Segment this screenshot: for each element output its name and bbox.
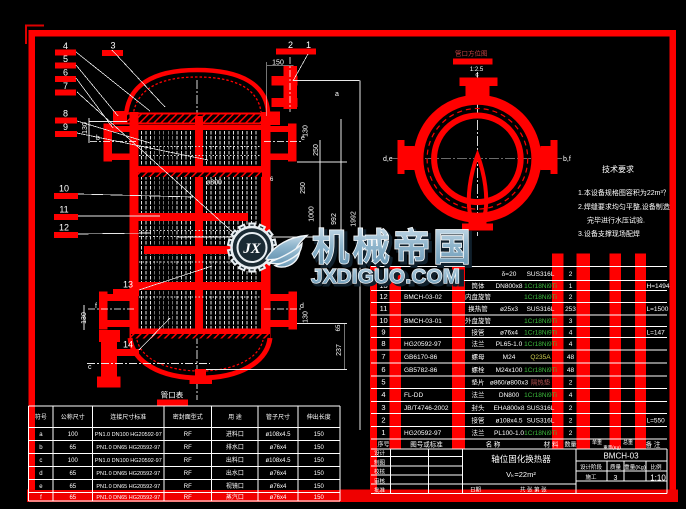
svg-text:筒体: 筒体 xyxy=(472,281,486,290)
svg-text:PN1.0 DN65 HG20592-97: PN1.0 DN65 HG20592-97 xyxy=(96,445,160,451)
svg-text:8: 8 xyxy=(63,109,68,119)
svg-text:1Cr18Ni9Ti: 1Cr18Ni9Ti xyxy=(524,392,557,399)
svg-text:换热管: 换热管 xyxy=(468,304,488,313)
svg-text:RF: RF xyxy=(184,495,192,501)
svg-text:数量: 数量 xyxy=(564,441,576,449)
svg-text:253: 253 xyxy=(565,306,576,313)
svg-text:4: 4 xyxy=(569,392,573,399)
svg-text:EHA800x8: EHA800x8 xyxy=(493,405,524,412)
svg-text:Q235A: Q235A xyxy=(530,354,551,361)
svg-text:65: 65 xyxy=(69,445,76,451)
svg-text:ø76x4: ø76x4 xyxy=(270,471,287,477)
svg-text:2: 2 xyxy=(569,430,573,437)
svg-text:技术要求: 技术要求 xyxy=(602,164,634,174)
svg-text:PN1.0 DN65 HG20592-97: PN1.0 DN65 HG20592-97 xyxy=(96,471,160,477)
svg-text:HG20592-97: HG20592-97 xyxy=(404,341,442,348)
svg-text:ø860/ø800x3: ø860/ø800x3 xyxy=(490,379,529,386)
svg-text:垫片: 垫片 xyxy=(472,377,485,386)
svg-text:2: 2 xyxy=(569,405,573,412)
svg-text:M24x100: M24x100 xyxy=(496,367,523,374)
svg-text:4: 4 xyxy=(381,390,385,399)
svg-text:FL-DD: FL-DD xyxy=(404,392,423,399)
svg-text:150: 150 xyxy=(272,60,284,67)
svg-text:ø76x4: ø76x4 xyxy=(270,445,287,451)
svg-text:150: 150 xyxy=(314,495,325,501)
svg-text:1Cr18Ni9Ti: 1Cr18Ni9Ti xyxy=(524,367,557,374)
svg-text:1.本设备规格图容积为22m³？: 1.本设备规格图容积为22m³？ xyxy=(578,188,670,197)
svg-text:150: 150 xyxy=(314,484,325,490)
svg-text:48: 48 xyxy=(567,367,575,374)
svg-text:备 注: 备 注 xyxy=(646,440,661,449)
svg-text:接管: 接管 xyxy=(472,415,486,424)
svg-text:制图: 制图 xyxy=(374,458,386,466)
svg-text:ø800: ø800 xyxy=(206,180,222,187)
svg-text:质量: 质量 xyxy=(610,463,622,471)
svg-text:Vₖ=22m²: Vₖ=22m² xyxy=(506,470,536,479)
svg-text:ø25x3: ø25x3 xyxy=(500,306,518,313)
svg-text:1Cr18Ni9Ti: 1Cr18Ni9Ti xyxy=(524,341,557,348)
svg-text:a: a xyxy=(335,91,339,98)
svg-text:出料口: 出料口 xyxy=(226,456,244,464)
svg-text:100: 100 xyxy=(68,432,79,438)
svg-text:符号: 符号 xyxy=(35,413,47,421)
svg-text:3: 3 xyxy=(381,403,385,412)
svg-text:HG20592-97: HG20592-97 xyxy=(404,430,442,437)
svg-text:接管: 接管 xyxy=(472,327,486,336)
svg-text:PN1.0 DN65 HG20592-97: PN1.0 DN65 HG20592-97 xyxy=(96,495,160,501)
svg-text:14: 14 xyxy=(123,340,133,350)
svg-text:65: 65 xyxy=(69,484,76,490)
svg-text:9: 9 xyxy=(63,122,68,132)
svg-text:RF: RF xyxy=(184,445,192,451)
svg-text:1Cr18Ni9Ti: 1Cr18Ni9Ti xyxy=(524,294,557,301)
svg-text:法兰: 法兰 xyxy=(472,428,486,437)
svg-text:法兰: 法兰 xyxy=(472,390,486,399)
svg-text:轴位固化换热器: 轴位固化换热器 xyxy=(491,454,551,464)
svg-text:设计阶段: 设计阶段 xyxy=(580,463,603,471)
svg-text:SUS316L: SUS316L xyxy=(527,405,555,412)
svg-text:RF: RF xyxy=(184,484,192,490)
svg-text:130: 130 xyxy=(303,125,310,137)
svg-text:11: 11 xyxy=(59,205,68,215)
svg-text:管子尺寸: 管子尺寸 xyxy=(266,413,290,421)
svg-text:排水口: 排水口 xyxy=(226,443,244,451)
svg-text:ø76x4: ø76x4 xyxy=(270,495,287,501)
svg-text:管口方位图: 管口方位图 xyxy=(455,49,488,58)
svg-text:机械帝国: 机械帝国 xyxy=(312,227,474,268)
svg-text:11: 11 xyxy=(380,304,388,313)
svg-text:密封面型式: 密封面型式 xyxy=(173,413,203,421)
svg-text:992: 992 xyxy=(331,213,338,225)
svg-text:150: 150 xyxy=(314,471,325,477)
svg-text:48: 48 xyxy=(567,354,575,361)
svg-text:d,e: d,e xyxy=(383,156,393,163)
svg-text:单重: 单重 xyxy=(592,439,602,446)
svg-text:L=147: L=147 xyxy=(647,329,666,336)
svg-text:RF: RF xyxy=(184,471,192,477)
svg-text:连接尺寸标准: 连接尺寸标准 xyxy=(110,413,146,421)
svg-text:7: 7 xyxy=(381,352,385,361)
svg-text:伸出长度: 伸出长度 xyxy=(307,413,331,421)
svg-text:公称尺寸: 公称尺寸 xyxy=(61,413,85,421)
svg-text:ø76x4: ø76x4 xyxy=(500,329,518,336)
svg-text:2: 2 xyxy=(569,379,573,386)
svg-text:130: 130 xyxy=(303,311,310,323)
svg-text:6: 6 xyxy=(381,365,385,374)
svg-text:12: 12 xyxy=(59,223,69,233)
svg-text:130: 130 xyxy=(82,122,89,134)
svg-text:ø108x4.5: ø108x4.5 xyxy=(495,417,522,424)
svg-text:序号: 序号 xyxy=(377,441,389,449)
svg-text:9: 9 xyxy=(381,327,385,336)
svg-text:d: d xyxy=(300,303,304,310)
svg-text:SUS316L: SUS316L xyxy=(527,306,555,313)
svg-text:设计: 设计 xyxy=(374,449,386,457)
svg-text:3.设备支撑现场配焊: 3.设备支撑现场配焊 xyxy=(578,229,640,238)
svg-text:PN1.0 DN100 HG20592-97: PN1.0 DN100 HG20592-97 xyxy=(95,458,162,464)
svg-text:校核: 校核 xyxy=(374,468,386,476)
svg-text:3: 3 xyxy=(614,475,618,482)
svg-text:视镜口: 视镜口 xyxy=(226,482,244,490)
svg-text:65: 65 xyxy=(69,471,76,477)
svg-text:10: 10 xyxy=(59,184,69,194)
svg-text:BMCH-03-01: BMCH-03-01 xyxy=(404,318,442,325)
svg-text:进料口: 进料口 xyxy=(226,430,244,438)
svg-text:出水口: 出水口 xyxy=(226,469,244,477)
svg-text:隔热垫: 隔热垫 xyxy=(531,377,551,386)
svg-text:JX: JX xyxy=(242,241,262,257)
svg-text:完毕进行水压试验.: 完毕进行水压试验. xyxy=(587,216,645,225)
svg-text:1:10: 1:10 xyxy=(650,474,666,483)
svg-text:4: 4 xyxy=(569,329,573,336)
svg-text:日期: 日期 xyxy=(470,487,482,494)
svg-text:1: 1 xyxy=(569,283,573,290)
svg-text:螺母: 螺母 xyxy=(472,352,486,361)
svg-text:L=550: L=550 xyxy=(647,417,666,424)
svg-text:d: d xyxy=(39,471,42,477)
svg-text:用 途: 用 途 xyxy=(228,413,242,421)
svg-text:DN800: DN800 xyxy=(499,392,520,399)
svg-text:4: 4 xyxy=(569,341,573,348)
svg-text:δ=20: δ=20 xyxy=(502,271,517,278)
svg-text:65: 65 xyxy=(336,324,342,331)
svg-text:螺栓: 螺栓 xyxy=(472,365,486,374)
svg-text:c: c xyxy=(39,458,42,464)
svg-text:2: 2 xyxy=(569,271,573,278)
svg-text:重量(Kg): 重量(Kg) xyxy=(624,463,646,471)
svg-text:L=1500: L=1500 xyxy=(647,306,669,313)
svg-text:100: 100 xyxy=(68,458,79,464)
svg-text:共 张 第 张: 共 张 第 张 xyxy=(520,486,547,494)
svg-text:1Cr18Ni9Ti: 1Cr18Ni9Ti xyxy=(524,318,557,325)
svg-text:审核: 审核 xyxy=(374,477,386,485)
svg-text:PN1.0 DN100 HG20592-97: PN1.0 DN100 HG20592-97 xyxy=(95,432,162,438)
svg-text:1Cr18Ni9Ti: 1Cr18Ni9Ti xyxy=(524,329,557,336)
svg-text:5: 5 xyxy=(381,377,385,386)
svg-text:10: 10 xyxy=(379,316,387,325)
svg-text:b,f: b,f xyxy=(563,156,571,163)
svg-text:PN1.0 DN65 HG20592-97: PN1.0 DN65 HG20592-97 xyxy=(96,484,160,490)
svg-text:PL100-1.0: PL100-1.0 xyxy=(494,430,524,437)
svg-text:1:2.5: 1:2.5 xyxy=(470,67,484,73)
svg-text:BMCH-03-02: BMCH-03-02 xyxy=(404,294,442,301)
svg-text:GB6170-86: GB6170-86 xyxy=(404,354,438,361)
svg-text:SUS316L: SUS316L xyxy=(527,271,555,278)
svg-text:150: 150 xyxy=(314,432,325,438)
svg-text:法兰: 法兰 xyxy=(472,339,486,348)
svg-text:材 料: 材 料 xyxy=(544,440,559,449)
svg-text:比例: 比例 xyxy=(650,463,662,471)
svg-text:PL65-1.0: PL65-1.0 xyxy=(496,341,523,348)
svg-text:1992: 1992 xyxy=(351,211,358,227)
svg-text:SUS316L: SUS316L xyxy=(527,417,555,424)
svg-text:M24: M24 xyxy=(503,354,516,361)
svg-text:JB/T4746-2002: JB/T4746-2002 xyxy=(404,405,449,412)
svg-text:2: 2 xyxy=(569,417,573,424)
svg-text:250: 250 xyxy=(313,144,320,156)
svg-text:150: 150 xyxy=(314,445,325,451)
svg-text:外盘旋管: 外盘旋管 xyxy=(465,316,492,325)
svg-text:批准: 批准 xyxy=(374,486,386,494)
svg-text:封头: 封头 xyxy=(472,403,486,412)
svg-text:f: f xyxy=(95,303,97,310)
svg-text:H=1494: H=1494 xyxy=(647,283,670,290)
svg-text:3: 3 xyxy=(110,41,115,51)
svg-text:13: 13 xyxy=(123,280,133,290)
svg-text:重量(Kg): 重量(Kg) xyxy=(603,444,621,451)
svg-text:2.焊缝要求均匀平整,设备制造: 2.焊缝要求均匀平整,设备制造 xyxy=(578,202,670,211)
svg-text:150: 150 xyxy=(314,458,325,464)
svg-text:1Cr18Ni9Ti: 1Cr18Ni9Ti xyxy=(524,283,557,290)
svg-text:237: 237 xyxy=(336,344,343,356)
svg-text:12: 12 xyxy=(379,292,387,301)
svg-text:内盘旋管: 内盘旋管 xyxy=(465,292,492,301)
svg-text:1Cr18Ni9Ti: 1Cr18Ni9Ti xyxy=(524,430,557,437)
svg-text:8: 8 xyxy=(381,339,385,348)
svg-text:1000: 1000 xyxy=(309,206,316,222)
svg-text:3: 3 xyxy=(569,318,573,325)
svg-text:名 称: 名 称 xyxy=(486,440,501,449)
svg-text:ø108x4.5: ø108x4.5 xyxy=(265,458,291,464)
svg-text:2: 2 xyxy=(381,415,385,424)
svg-text:250: 250 xyxy=(300,182,307,194)
svg-text:BMCH-03: BMCH-03 xyxy=(603,452,639,461)
svg-text:130: 130 xyxy=(81,312,88,324)
svg-text:RF: RF xyxy=(184,458,192,464)
svg-text:1: 1 xyxy=(381,428,385,437)
svg-text:图号或标准: 图号或标准 xyxy=(410,440,443,449)
svg-text:GB5782-86: GB5782-86 xyxy=(404,367,438,374)
svg-text:RF: RF xyxy=(184,432,192,438)
svg-text:管口表: 管口表 xyxy=(161,390,184,400)
svg-text:b: b xyxy=(96,135,100,142)
svg-text:蒸汽口: 蒸汽口 xyxy=(226,493,244,501)
svg-text:65: 65 xyxy=(69,495,76,501)
svg-text:c: c xyxy=(88,364,92,371)
svg-text:施工: 施工 xyxy=(585,473,597,481)
svg-text:DN800x8: DN800x8 xyxy=(495,283,522,290)
svg-text:ø76x4: ø76x4 xyxy=(270,484,287,490)
svg-text:总重: 总重 xyxy=(623,439,633,446)
svg-text:JXDIGUO.COM: JXDIGUO.COM xyxy=(311,265,460,288)
svg-text:ø108x4.5: ø108x4.5 xyxy=(265,432,291,438)
svg-text:2: 2 xyxy=(569,294,573,301)
